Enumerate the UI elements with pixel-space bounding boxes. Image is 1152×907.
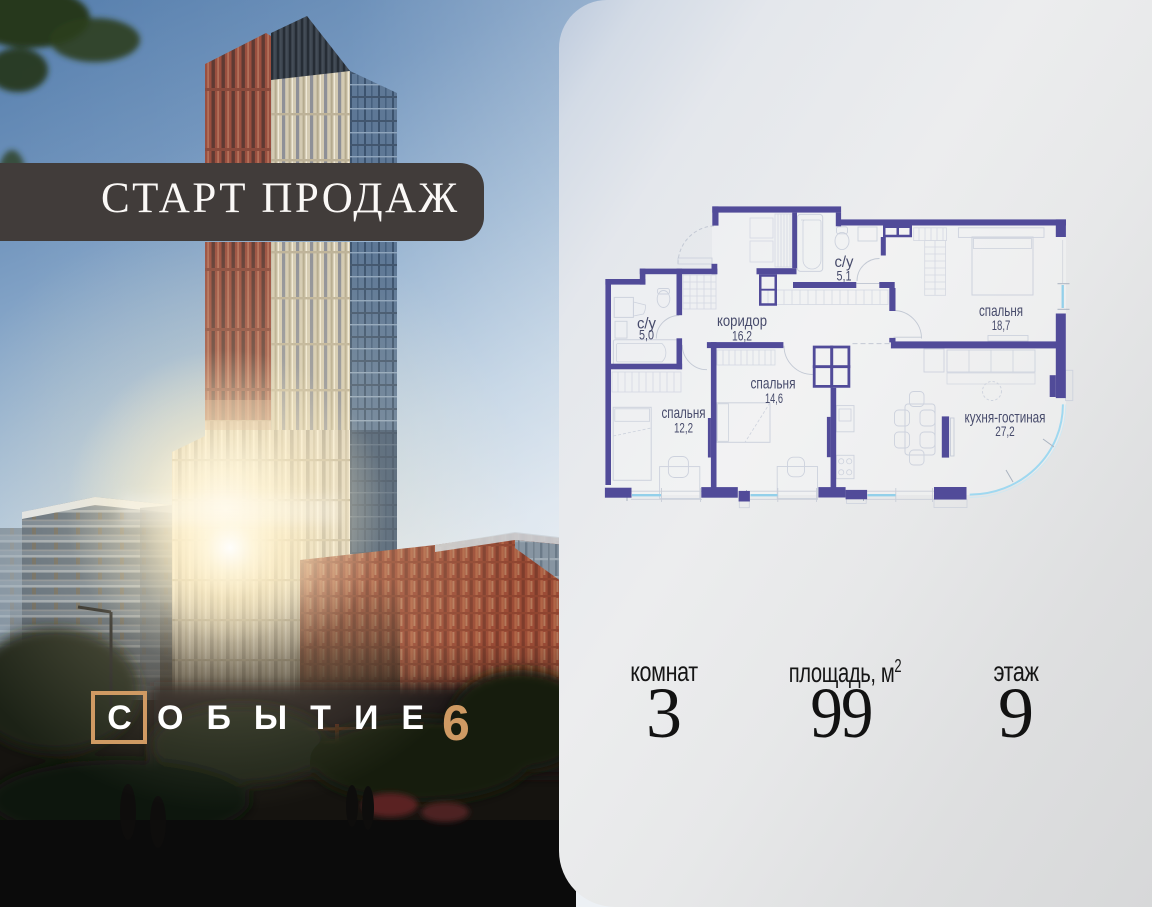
svg-text:16,2: 16,2 xyxy=(732,328,752,344)
svg-text:5,0: 5,0 xyxy=(639,327,654,343)
svg-text:12,2: 12,2 xyxy=(674,420,693,436)
svg-text:5,1: 5,1 xyxy=(837,268,852,284)
svg-text:27,2: 27,2 xyxy=(995,423,1015,439)
svg-text:18,7: 18,7 xyxy=(992,317,1011,333)
svg-text:14,6: 14,6 xyxy=(765,390,783,406)
